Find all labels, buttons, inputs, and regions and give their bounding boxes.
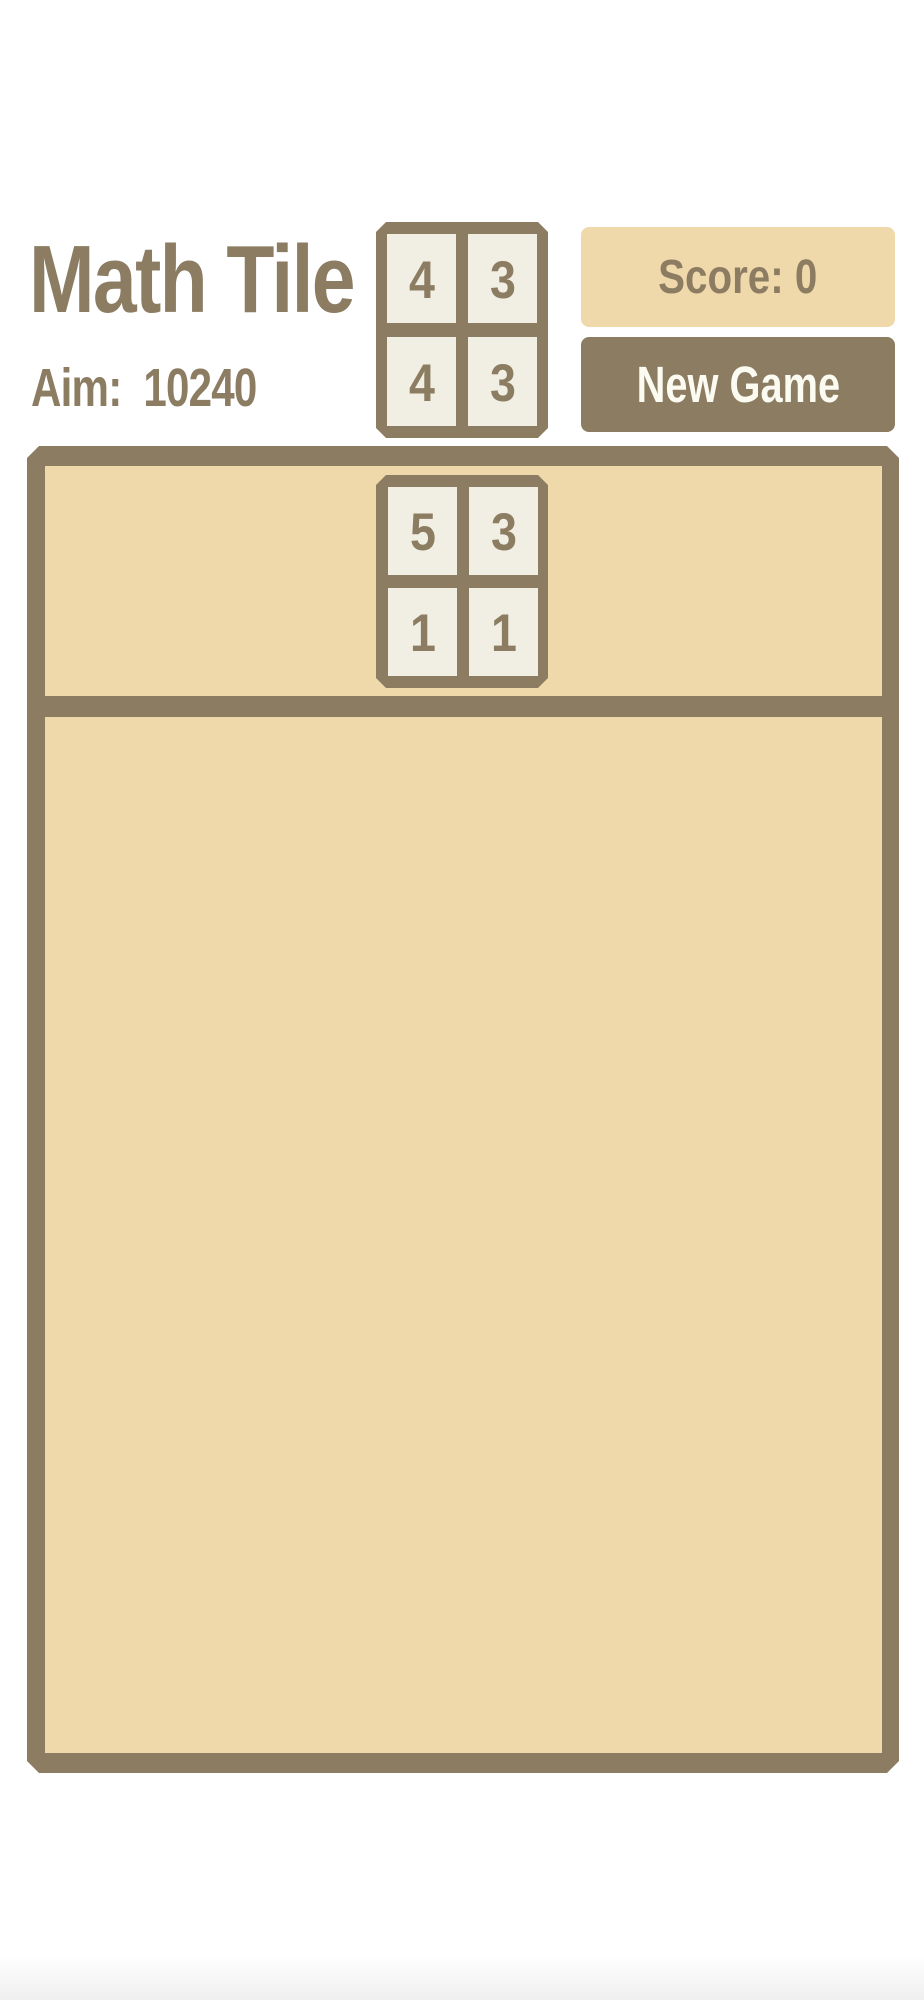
svg-text:4: 4 [409, 353, 435, 412]
svg-text:1: 1 [491, 603, 517, 662]
svg-text:3: 3 [491, 502, 517, 561]
svg-text:4: 4 [409, 250, 435, 309]
svg-text:3: 3 [490, 250, 516, 309]
svg-text:1: 1 [410, 603, 436, 662]
svg-text:3: 3 [490, 353, 516, 412]
svg-text:5: 5 [410, 502, 436, 561]
